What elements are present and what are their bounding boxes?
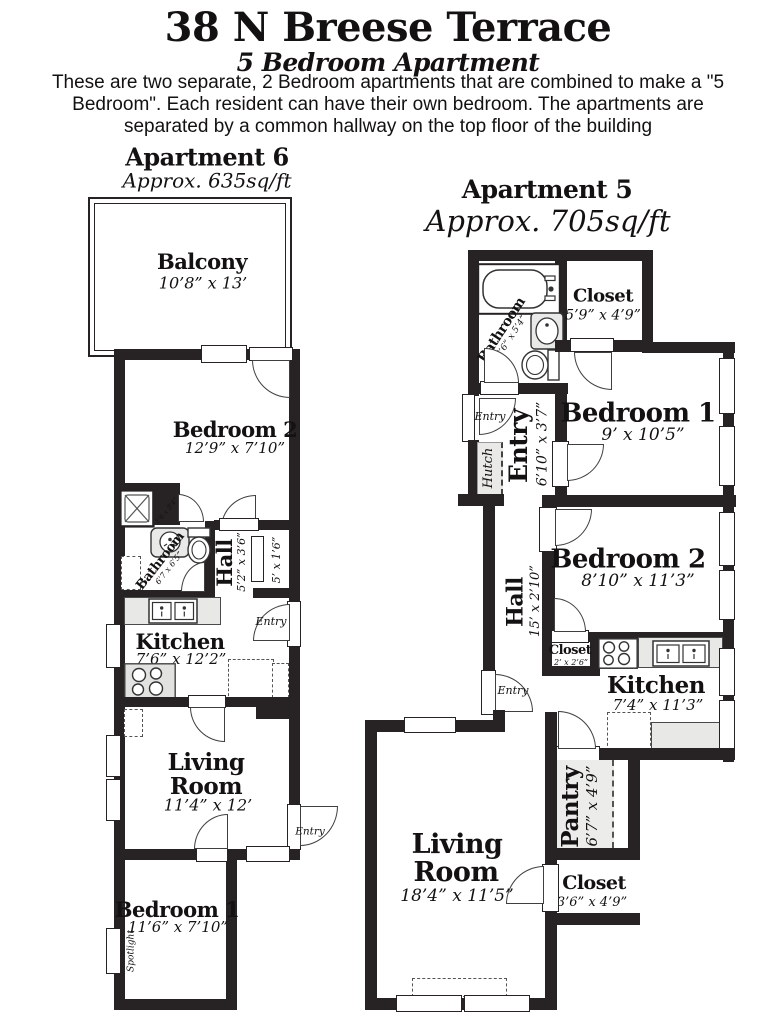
entry-door-label: Entry bbox=[295, 826, 325, 837]
fixture-outline bbox=[272, 663, 289, 698]
living-room-dims: 11’4” x 12’ bbox=[164, 798, 252, 815]
toilet-icon bbox=[519, 348, 561, 382]
window bbox=[396, 995, 462, 1012]
window bbox=[106, 928, 121, 974]
fixture-outline bbox=[124, 709, 143, 737]
spotlight-label: Spotlight bbox=[127, 930, 136, 972]
double-sink-icon bbox=[148, 598, 198, 624]
entry-room-label: Entry bbox=[506, 409, 532, 483]
page-description: These are two separate, 2 Bedroom apartm… bbox=[30, 72, 746, 138]
closet-bottom-dims: 3’6” x 4’9” bbox=[557, 896, 627, 910]
bedroom2-label: Bedroom 2 bbox=[173, 419, 298, 441]
balcony-dims: 10’8” x 13’ bbox=[159, 276, 247, 293]
apartment6-area: Approx. 635sq/ft bbox=[122, 171, 291, 192]
pantry-dims: 6’7” x 4’9” bbox=[585, 765, 601, 846]
wall bbox=[628, 754, 640, 858]
bedroom1-label: Bedroom 1 bbox=[560, 400, 715, 427]
entry-door-label: Entry bbox=[497, 685, 528, 697]
bedroom2-dims: 8’10” x 11’3” bbox=[581, 573, 694, 591]
entry-door-label: Entry bbox=[474, 411, 505, 423]
hutch-label: Hutch bbox=[482, 448, 496, 489]
wall bbox=[365, 720, 377, 1010]
hall-dims: 5’2” x 3’6” bbox=[236, 532, 248, 591]
door-arc bbox=[558, 711, 596, 749]
door-arc bbox=[555, 509, 592, 546]
door-threshold bbox=[462, 394, 475, 442]
wall bbox=[114, 999, 237, 1010]
wall bbox=[642, 342, 735, 353]
wall bbox=[253, 588, 300, 598]
living-room-label-1: Living bbox=[412, 831, 503, 859]
window bbox=[719, 570, 735, 620]
window bbox=[404, 717, 456, 733]
refrigerator-outline bbox=[228, 659, 274, 701]
shower-icon bbox=[119, 489, 155, 528]
balcony-label: Balcony bbox=[157, 251, 247, 273]
closet-bottom-label: Closet bbox=[562, 874, 626, 894]
wall bbox=[545, 913, 640, 925]
door-arc bbox=[554, 598, 586, 632]
hall-label: Hall bbox=[504, 577, 527, 627]
wall bbox=[545, 848, 640, 860]
window bbox=[201, 345, 247, 363]
window bbox=[464, 995, 530, 1012]
closet-top-label: Closet bbox=[573, 288, 633, 307]
bedroom2-label: Bedroom 2 bbox=[550, 546, 705, 573]
living-room-dims: 18’4” x 11’5” bbox=[400, 888, 513, 906]
refrigerator-outline bbox=[607, 712, 651, 751]
apartment5-title: Apartment 5 bbox=[462, 177, 632, 203]
wall bbox=[642, 250, 653, 353]
pantry-label: Pantry bbox=[559, 766, 583, 847]
door-arc bbox=[181, 562, 205, 592]
hall-label: Hall bbox=[214, 539, 236, 586]
stove-icon bbox=[124, 663, 176, 700]
floor-plan-page: 38 N Breese Terrace 5 Bedroom Apartment … bbox=[0, 0, 776, 1030]
door-threshold bbox=[480, 381, 519, 395]
wall bbox=[114, 697, 190, 707]
closet-mid-dims: 2’ x 2’6” bbox=[554, 659, 588, 667]
door-arc bbox=[190, 707, 225, 742]
double-sink-icon bbox=[652, 640, 710, 667]
door-arc bbox=[178, 494, 204, 522]
bedroom1-dims: 11’6” x 7’10” bbox=[128, 920, 228, 936]
window bbox=[246, 846, 290, 862]
door-threshold bbox=[570, 338, 614, 352]
window bbox=[719, 700, 735, 750]
window bbox=[106, 735, 121, 777]
bedroom1-dims: 9’ x 10’5” bbox=[601, 427, 684, 445]
entry-room-dims: 6’10” x 3’7” bbox=[536, 402, 551, 487]
door-arc bbox=[574, 352, 612, 390]
hall-dims: 15’ x 2’10” bbox=[529, 565, 543, 637]
entry-door-label: Entry bbox=[255, 616, 286, 628]
window bbox=[719, 648, 735, 696]
wall bbox=[545, 712, 557, 1010]
window bbox=[719, 358, 735, 414]
stove-icon bbox=[598, 638, 638, 669]
wall bbox=[114, 849, 198, 860]
kitchen-label: Kitchen bbox=[607, 674, 705, 698]
page-title: 38 N Breese Terrace bbox=[0, 4, 776, 51]
living-room-label-1: Living bbox=[168, 751, 245, 775]
window bbox=[719, 512, 735, 566]
window bbox=[719, 426, 735, 486]
door-arc bbox=[252, 360, 290, 398]
door-arc bbox=[484, 348, 519, 383]
door-threshold bbox=[481, 670, 496, 715]
closet-door bbox=[251, 536, 264, 582]
window bbox=[106, 779, 121, 821]
wall bbox=[598, 748, 735, 760]
apartment6-title: Apartment 6 bbox=[125, 144, 288, 169]
wall bbox=[483, 506, 495, 674]
window bbox=[106, 624, 121, 668]
door-threshold bbox=[542, 864, 559, 912]
door-threshold bbox=[196, 847, 228, 862]
closet-mid-label: Closet bbox=[549, 644, 592, 658]
apartment5-area: Approx. 705sq/ft bbox=[425, 206, 670, 236]
wall bbox=[612, 340, 644, 352]
door-arc bbox=[567, 444, 604, 481]
door-threshold bbox=[249, 347, 293, 361]
bedroom2-dims: 12’9” x 7’10” bbox=[185, 441, 285, 457]
living-room-label-2: Room bbox=[413, 859, 498, 887]
wall bbox=[256, 697, 300, 719]
door-arc bbox=[194, 814, 228, 849]
closet-dims: 5’ x 1’6” bbox=[271, 537, 283, 584]
wall bbox=[542, 495, 736, 507]
wall bbox=[458, 494, 504, 506]
door-threshold bbox=[219, 518, 259, 531]
closet-top-dims: 5’9” x 4’9” bbox=[565, 309, 641, 324]
